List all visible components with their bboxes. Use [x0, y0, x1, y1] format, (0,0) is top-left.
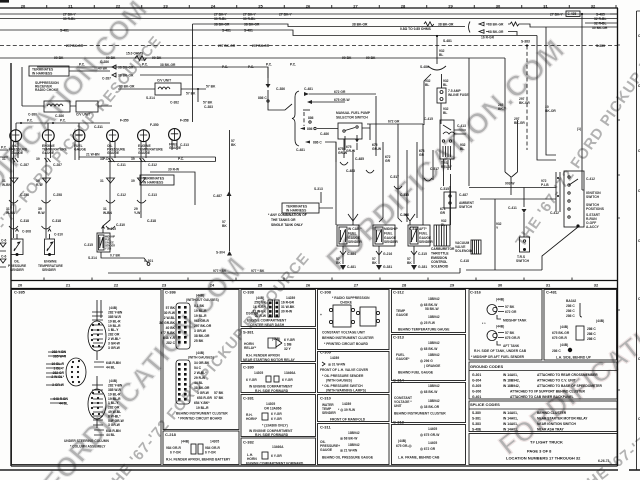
svg-text:26: 26	[306, 283, 311, 288]
svg-text:30 R-W: 30 R-W	[281, 309, 293, 313]
svg-text:BK-GR: BK-GR	[519, 101, 530, 105]
svg-text:30 R-BL: 30 R-BL	[63, 17, 75, 21]
svg-text:C-287: C-287	[20, 163, 29, 167]
svg-text:39: 39	[36, 157, 40, 161]
svg-text:+: +	[320, 313, 322, 317]
svg-text:23: 23	[163, 3, 168, 8]
svg-text:C-311: C-311	[117, 163, 126, 167]
svg-text:58 BK-W: 58 BK-W	[425, 307, 439, 311]
svg-text:38 BK-OR: 38 BK-OR	[118, 74, 134, 78]
svg-text:C-486: C-486	[320, 132, 329, 136]
svg-text:GAUGE: GAUGE	[320, 448, 333, 452]
svg-text:0.7 BK: 0.7 BK	[110, 254, 121, 258]
svg-text:(44B): (44B)	[109, 379, 117, 383]
svg-text:IN ENGINE COMPARTMENT: IN ENGINE COMPARTMENT	[249, 429, 293, 433]
svg-text:297 BK-GR: 297 BK-GR	[218, 44, 236, 48]
svg-text:28: 28	[402, 283, 407, 288]
svg-text:R.H. SIDE OF TANK, UNDER CAB: R.H. SIDE OF TANK, UNDER CAB	[474, 349, 527, 353]
svg-text:648 R-BN: 648 R-BN	[106, 429, 121, 433]
svg-text:THE TANKS OR: THE TANKS OR	[271, 218, 296, 222]
svg-text:C-484: C-484	[347, 252, 356, 256]
svg-text:648 Y-R: 648 Y-R	[163, 336, 175, 340]
svg-text:HORN*: HORN*	[246, 417, 258, 421]
svg-text:38 BK-OR: 38 BK-OR	[438, 22, 454, 26]
svg-text:◎ 68 BK-W: ◎ 68 BK-W	[420, 347, 438, 351]
svg-text:C/V UNIT: C/V UNIT	[157, 79, 171, 83]
svg-text:FUEL: FUEL	[348, 231, 357, 235]
svg-text:18B942: 18B942	[348, 431, 360, 435]
svg-text:IN 14A01,: IN 14A01,	[503, 417, 518, 421]
svg-text:R.H. SIDE FORWARD: R.H. SIDE FORWARD	[255, 389, 289, 393]
svg-text:30: 30	[496, 3, 501, 8]
svg-text:* COLUMN ASSEMBLY: * COLUMN ASSEMBLY	[70, 445, 106, 449]
svg-text:23: 23	[162, 283, 167, 288]
svg-text:SENDER: SENDER	[384, 240, 398, 244]
svg-text:(WITH GAUGES): (WITH GAUGES)	[326, 378, 352, 382]
svg-text:AFT TANK: AFT TANK	[503, 344, 520, 348]
svg-text:FRONT OF MANIFOLD: FRONT OF MANIFOLD	[330, 417, 366, 421]
svg-text:THROTTLE: THROTTLE	[431, 251, 449, 255]
svg-text:C-386: C-386	[276, 87, 285, 91]
svg-text:C-515: C-515	[440, 187, 449, 191]
svg-text:C-312: C-312	[393, 290, 405, 295]
svg-text:UNIT: UNIT	[394, 404, 402, 408]
svg-text:57 BK: 57 BK	[214, 391, 224, 395]
svg-text:38 BK-OR: 38 BK-OR	[194, 334, 210, 338]
svg-text:P.C.: P.C.	[266, 63, 272, 67]
svg-text:38 BK-OR: 38 BK-OR	[119, 85, 135, 89]
svg-text:19 BL-R: 19 BL-R	[108, 397, 121, 401]
svg-text:14289: 14289	[286, 296, 295, 300]
svg-text:C-411: C-411	[508, 206, 517, 210]
svg-text:977 * BK: 977 * BK	[213, 269, 227, 273]
svg-text:ENGINE COMPARTMENT: ENGINE COMPARTMENT	[247, 318, 286, 322]
svg-text:C-380: C-380	[243, 365, 255, 370]
svg-text:GAUGE: GAUGE	[348, 236, 361, 240]
svg-text:C-418: C-418	[460, 259, 469, 263]
svg-text:(WITH WARNING LAMPS): (WITH WARNING LAMPS)	[326, 388, 366, 392]
svg-text:C-385: C-385	[14, 290, 26, 295]
svg-text:EMISSION: EMISSION	[431, 256, 448, 260]
svg-text:57 BK: 57 BK	[214, 396, 224, 400]
svg-text:C-481: C-481	[546, 290, 558, 295]
svg-text:C-481: C-481	[296, 148, 305, 152]
svg-text:◎ 31 W-RN: ◎ 31 W-RN	[328, 362, 346, 366]
svg-text:C-380: C-380	[28, 112, 37, 116]
svg-text:C-487: C-487	[213, 194, 222, 198]
svg-text:GAUGE*: GAUGE*	[396, 357, 410, 361]
svg-text:14305: 14305	[254, 371, 263, 375]
svg-text:40 BK: 40 BK	[166, 326, 176, 330]
svg-text:C-312: C-312	[148, 163, 157, 167]
svg-text:653 R-GR: 653 R-GR	[197, 396, 212, 400]
svg-text:ATTACHED TO BASE OF SPEEDOMETE: ATTACHED TO BASE OF SPEEDOMETER	[537, 384, 602, 388]
svg-text:GR: GR	[419, 153, 425, 157]
svg-text:BK-GR: BK-GR	[514, 121, 525, 125]
svg-text:44 BL: 44 BL	[106, 433, 115, 437]
svg-text:AFT*: AFT*	[419, 227, 427, 231]
svg-text:3 GR-W: 3 GR-W	[108, 346, 121, 350]
svg-text:GAUGE: GAUGE	[107, 151, 120, 155]
svg-text:984 GR-R: 984 GR-R	[205, 446, 220, 450]
svg-text:286 C: 286 C	[566, 309, 575, 313]
svg-text:R-W: R-W	[36, 183, 43, 187]
svg-text:S-314: S-314	[88, 256, 97, 260]
svg-text:GR: GR	[440, 211, 446, 215]
svg-text:P-LB: P-LB	[541, 183, 549, 187]
svg-text:SWITCH: SWITCH	[459, 205, 473, 209]
svg-text:29 R-W: 29 R-W	[194, 376, 206, 380]
svg-text:6 Y-GR: 6 Y-GR	[271, 417, 282, 421]
svg-text:18B942: 18B942	[428, 315, 440, 319]
svg-text:OR 13A866: OR 13A866	[264, 406, 282, 410]
svg-text:2 W-BL*: 2 W-BL*	[194, 371, 207, 375]
svg-text:P.C.: P.C.	[222, 65, 228, 69]
svg-text:13466A: 13466A	[272, 445, 284, 449]
svg-text:UNDER STEERING COLUMN: UNDER STEERING COLUMN	[64, 439, 109, 443]
svg-text:FUEL: FUEL	[419, 231, 428, 235]
svg-text:2 W-BL*: 2 W-BL*	[108, 337, 121, 341]
svg-text:NEAR ASH TRAY: NEAR ASH TRAY	[537, 428, 564, 432]
svg-text:S-485: S-485	[596, 12, 605, 16]
svg-text:BK: BK	[222, 224, 227, 228]
svg-text:C-310: C-310	[320, 396, 332, 401]
svg-text:20: 20	[21, 3, 26, 8]
svg-text:(44B): (44B)	[398, 439, 406, 443]
svg-text:NEAR STARTING MOTOR RELAY: NEAR STARTING MOTOR RELAY	[243, 358, 296, 362]
svg-text:14305: 14305	[210, 439, 219, 443]
svg-text:3 GR-W: 3 GR-W	[197, 391, 210, 395]
svg-text:BK: BK	[336, 261, 341, 265]
svg-text:648 R-BN: 648 R-BN	[106, 361, 121, 365]
svg-text:286 C: 286 C	[552, 349, 561, 353]
svg-text:977 * BK: 977 * BK	[251, 269, 265, 273]
svg-text:IN 18B942,: IN 18B942,	[503, 384, 520, 388]
svg-text:14405: 14405	[428, 441, 437, 445]
svg-text:C-258: C-258	[20, 193, 29, 197]
svg-text:RELAY: RELAY	[441, 165, 453, 169]
svg-text:672 GR: 672 GR	[388, 120, 400, 124]
svg-text:S-485: S-485	[568, 12, 577, 16]
svg-text:57 BK: 57 BK	[166, 306, 176, 310]
svg-text:GR-W: GR-W	[346, 149, 356, 153]
svg-text:ENGINE: ENGINE	[44, 259, 57, 263]
svg-text:IN ENGINE COMPARTMENT: IN ENGINE COMPARTMENT	[249, 384, 293, 388]
svg-text:1 DB: 1 DB	[284, 343, 292, 347]
svg-text:C-415: C-415	[424, 117, 433, 121]
svg-text:P.C.: P.C.	[1, 146, 7, 150]
svg-text:3 GR-W: 3 GR-W	[108, 423, 121, 427]
svg-text:P.C.: P.C.	[142, 63, 148, 67]
svg-text:BK: BK	[407, 261, 412, 265]
svg-text:18B942: 18B942	[428, 341, 440, 345]
svg-text:14405: 14405	[428, 427, 437, 431]
svg-text:Y-258: Y-258	[105, 248, 112, 251]
svg-text:G-381: G-381	[418, 265, 427, 269]
svg-text:54F GR-W: 54F GR-W	[108, 419, 125, 423]
svg-text:90 BK: 90 BK	[152, 56, 162, 60]
svg-text:C-481: C-481	[304, 87, 313, 91]
svg-text:984 GR-R: 984 GR-R	[166, 446, 181, 450]
svg-text:P.C.: P.C.	[290, 63, 296, 67]
svg-text:BL: BL	[460, 147, 464, 151]
svg-text:IN HARNESS: IN HARNESS	[32, 72, 53, 76]
svg-text:C-311: C-311	[94, 125, 103, 129]
svg-text:R.H. FENDER APRON: R.H. FENDER APRON	[246, 353, 280, 357]
svg-text:S-313: S-313	[314, 187, 323, 191]
svg-text:29: 29	[448, 3, 453, 8]
svg-text:30 R-BL: 30 R-BL	[243, 17, 255, 21]
svg-text:RELAY*: RELAY*	[244, 346, 257, 350]
svg-text:RADIO CHOKE: RADIO CHOKE	[35, 88, 59, 92]
svg-text:SOLENOID: SOLENOID	[431, 265, 449, 269]
svg-text:BL: BL	[443, 111, 447, 115]
svg-text:GAUGE: GAUGE	[396, 313, 409, 317]
svg-text:29: 29	[450, 283, 455, 288]
svg-text:6 Y-GR: 6 Y-GR	[284, 338, 295, 342]
svg-text:GROUND CODES: GROUND CODES	[470, 364, 503, 369]
svg-text:32 R-BL: 32 R-BL	[594, 21, 606, 25]
svg-text:C-258: C-258	[53, 193, 62, 197]
svg-text:CENTER NEAR DASH: CENTER NEAR DASH	[250, 323, 285, 327]
svg-text:(44B): (44B)	[196, 293, 204, 297]
svg-text:90 BK: 90 BK	[366, 56, 376, 60]
svg-text:C-516: C-516	[400, 213, 409, 217]
svg-text:C-312: C-312	[117, 193, 126, 197]
svg-text:C-412: C-412	[550, 211, 559, 215]
svg-text:57 BK: 57 BK	[206, 85, 216, 89]
svg-text:19 BL-R: 19 BL-R	[194, 314, 207, 318]
svg-text:* ◎ 39 R-W: * ◎ 39 R-W	[338, 408, 356, 412]
svg-text:(44B): (44B)	[496, 324, 504, 328]
svg-text:30: 30	[498, 283, 503, 288]
svg-text:S-381: S-381	[472, 417, 481, 421]
svg-text:MIDSHIP: MIDSHIP	[384, 227, 399, 231]
svg-text:39: 39	[131, 179, 135, 183]
svg-text:C-315: C-315	[418, 252, 427, 256]
svg-text:BL: BL	[443, 83, 447, 87]
svg-text:IN HARNESS: IN HARNESS	[143, 181, 164, 185]
svg-text:C-218: C-218	[165, 432, 177, 437]
svg-text:BEHIND TEMPERATURE GAUGE: BEHIND TEMPERATURE GAUGE	[398, 327, 450, 331]
svg-text:BK-OR: BK-OR	[545, 109, 556, 113]
svg-text:GR-W: GR-W	[338, 151, 348, 155]
svg-text:C-318: C-318	[147, 219, 156, 223]
svg-text:26: 26	[306, 3, 311, 8]
svg-text:C-315: C-315	[84, 243, 93, 247]
svg-text:15.0 OHMS: 15.0 OHMS	[126, 51, 144, 55]
svg-text:GAUGE: GAUGE	[138, 151, 151, 155]
svg-text:6 Y-GR: 6 Y-GR	[271, 454, 282, 458]
svg-text:31: 31	[100, 179, 104, 183]
svg-text:T# LIGHT TRUCK: T# LIGHT TRUCK	[530, 440, 563, 445]
svg-text:G-301: G-301	[472, 373, 481, 377]
svg-text:MIDSHIP TANK: MIDSHIP TANK	[503, 318, 527, 322]
svg-text:385 W-R: 385 W-R	[108, 388, 122, 392]
svg-text:◎ 68 BK-W: ◎ 68 BK-W	[340, 436, 358, 440]
svg-text:886 C: 886 C	[313, 141, 322, 145]
svg-text:P.C.: P.C.	[103, 157, 109, 161]
svg-text:S-304: S-304	[216, 250, 225, 254]
svg-text:P.C.: P.C.	[60, 119, 66, 123]
svg-text:| ORANGE: | ORANGE	[424, 364, 441, 368]
svg-text:BEHIND FUEL GAUGE: BEHIND FUEL GAUGE	[398, 370, 434, 374]
svg-text:C-313: C-313	[393, 335, 405, 340]
svg-text:A-ACCY: A-ACCY	[586, 225, 600, 229]
svg-text:S-481: S-481	[60, 28, 69, 32]
svg-text:286 C: 286 C	[587, 327, 596, 331]
svg-text:BEHIND OIL PRESSURE GAUGE: BEHIND OIL PRESSURE GAUGE	[322, 455, 374, 459]
svg-text:C-313: C-313	[148, 193, 157, 197]
svg-text:8 W-BL*: 8 W-BL*	[108, 414, 121, 418]
svg-text:1 BL-Y: 1 BL-Y	[108, 401, 119, 405]
svg-text:(WITH GAUGES): (WITH GAUGES)	[188, 356, 214, 360]
svg-text:297 BK-GR: 297 BK-GR	[66, 44, 84, 48]
svg-text:◎ 38 BK-OR: ◎ 38 BK-OR	[420, 405, 440, 409]
svg-text:* OIL PRESSURE SWITCH: * OIL PRESSURE SWITCH	[322, 384, 363, 388]
svg-text:SPLICE CODES: SPLICE CODES	[470, 402, 500, 407]
svg-text:SELECTOR SWITCH: SELECTOR SWITCH	[336, 115, 368, 119]
svg-text:25: 25	[258, 3, 263, 8]
svg-text:S-383: S-383	[596, 44, 605, 48]
svg-text:G-301: G-301	[144, 259, 153, 263]
svg-text:22: 22	[116, 3, 121, 8]
svg-text:ENGINE COMPARTMENT FORWARD: ENGINE COMPARTMENT FORWARD	[246, 461, 304, 465]
svg-text:IN 14A01,: IN 14A01,	[503, 428, 518, 432]
svg-text:54 C: 54 C	[194, 366, 202, 370]
svg-text:C-318: C-318	[52, 219, 61, 223]
svg-text:GR: GR	[385, 159, 391, 163]
svg-text:38 BK-OR: 38 BK-OR	[244, 22, 260, 26]
svg-text:INLINE FUSE: INLINE FUSE	[448, 93, 469, 97]
svg-text:Y-W: Y-W	[134, 211, 141, 215]
svg-text:C-412: C-412	[586, 177, 595, 181]
svg-text:0.8Ω TO 0.85 OHMS: 0.8Ω TO 0.85 OHMS	[400, 27, 432, 31]
svg-text:18B942: 18B942	[428, 297, 440, 301]
svg-text:S-481: S-481	[443, 39, 452, 43]
svg-text:654 Y-BK*: 654 Y-BK*	[194, 401, 210, 405]
svg-text:38 BK-OR: 38 BK-OR	[352, 22, 368, 26]
svg-text:G-304: G-304	[472, 379, 481, 383]
svg-text:ATTACHED TO CAB INNER BACKPANE: ATTACHED TO CAB INNER BACKPANEL	[510, 395, 574, 399]
svg-text:IN CAB *: IN CAB *	[348, 227, 362, 231]
svg-text:21: 21	[66, 283, 71, 288]
svg-text:57 BK: 57 BK	[203, 101, 213, 105]
svg-text:S-486: S-486	[420, 65, 429, 69]
svg-text:30 BK-OR: 30 BK-OR	[592, 26, 608, 30]
svg-text:BL: BL	[439, 53, 443, 57]
svg-text:SOLENOID: SOLENOID	[455, 249, 473, 253]
svg-text:OIL: OIL	[14, 259, 20, 263]
svg-text:BEHIND INSTRUMENT CLUSTER: BEHIND INSTRUMENT CLUSTER	[176, 412, 228, 416]
svg-text:27 BK-Y: 27 BK-Y	[63, 12, 76, 16]
svg-text:POSITIONS: POSITIONS	[586, 207, 605, 211]
svg-text:1 BL-Y: 1 BL-Y	[108, 328, 119, 332]
svg-text:C-6: C-6	[1, 239, 6, 243]
svg-text:31: 31	[543, 3, 548, 8]
svg-text:27 BK-Y: 27 BK-Y	[243, 12, 256, 16]
svg-text:24: 24	[211, 3, 216, 8]
svg-text:32 Y: 32 Y	[284, 347, 292, 351]
svg-text:C-308: C-308	[22, 230, 31, 234]
svg-text:S-380: S-380	[472, 411, 481, 415]
svg-text:◎ 672 GR: ◎ 672 GR	[420, 447, 436, 451]
svg-text:SINGLE TANK ONLY: SINGLE TANK ONLY	[271, 223, 304, 227]
svg-text:ATTACHED TO REAR CROSSMEMBER: ATTACHED TO REAR CROSSMEMBER	[537, 373, 598, 377]
svg-text:IN 14A01,: IN 14A01,	[503, 373, 518, 377]
svg-text:W-BN: W-BN	[103, 211, 113, 215]
svg-text:C-310: C-310	[54, 233, 63, 237]
svg-text:21: 21	[68, 3, 73, 8]
svg-text:13466A: 13466A	[284, 371, 296, 375]
svg-text:90 BK: 90 BK	[342, 56, 352, 60]
svg-text:886: 886	[308, 116, 314, 120]
svg-text:* OIL PRESSURE SENDER: * OIL PRESSURE SENDER	[322, 374, 364, 378]
svg-text:FRONT OF L.H. VALVE COVER: FRONT OF L.H. VALVE COVER	[320, 368, 369, 372]
svg-text:G-305: G-305	[472, 384, 481, 388]
svg-text:BEHIND INSTRUMENT CLUSTER: BEHIND INSTRUMENT CLUSTER	[322, 336, 374, 340]
svg-text:C-515: C-515	[400, 193, 409, 197]
svg-text:25C BK: 25C BK	[254, 301, 266, 305]
svg-text:18B942: 18B942	[428, 353, 440, 357]
svg-text:675 GR-◎: 675 GR-◎	[396, 444, 411, 448]
svg-text:S-481: S-481	[222, 28, 231, 32]
svg-text:31: 31	[2, 157, 6, 161]
svg-text:0.1 BK: 0.1 BK	[194, 304, 205, 308]
svg-text:675 GR-W: 675 GR-W	[334, 98, 350, 102]
svg-text:38 BK-OR: 38 BK-OR	[214, 22, 230, 26]
svg-text:S-481: S-481	[244, 28, 253, 32]
svg-text:SWITCH: SWITCH	[516, 259, 530, 263]
svg-text:C-381: C-381	[243, 396, 255, 401]
svg-text:C-517: C-517	[390, 175, 399, 179]
svg-text:L.H. SIDE, BEHIND UP: L.H. SIDE, BEHIND UP	[556, 355, 592, 359]
svg-text:C-309: C-309	[320, 350, 332, 355]
svg-text:GAUGE: GAUGE	[419, 236, 432, 240]
svg-text:GR-W: GR-W	[372, 147, 382, 151]
svg-text:(44B): (44B)	[596, 319, 604, 323]
svg-text:IN 18B942,: IN 18B942,	[503, 379, 520, 383]
svg-text:C-311: C-311	[320, 425, 331, 430]
svg-text:286 C: 286 C	[566, 304, 575, 308]
svg-text:BK: BK	[231, 143, 236, 147]
svg-text:BK: BK	[372, 261, 377, 265]
svg-text:CHOKE: CHOKE	[340, 300, 353, 304]
svg-text:32: 32	[591, 3, 596, 8]
svg-text:32 R-BL: 32 R-BL	[594, 17, 606, 21]
svg-text:MANUAL FUEL PUMP: MANUAL FUEL PUMP	[336, 111, 371, 115]
svg-text:C-313: C-313	[180, 143, 189, 147]
svg-text:49 W-BL: 49 W-BL	[108, 410, 121, 414]
svg-text:BL: BL	[425, 83, 429, 87]
svg-text:3 GR-W: 3 GR-W	[194, 329, 207, 333]
svg-text:22: 22	[114, 283, 119, 288]
svg-text:C-485: C-485	[355, 157, 364, 161]
svg-text:19 BL-R: 19 BL-R	[108, 392, 121, 396]
svg-text:C-308: C-308	[320, 290, 332, 295]
svg-text:286 C: 286 C	[587, 332, 596, 336]
svg-text:C-315: C-315	[107, 227, 116, 231]
svg-text:6 Y-GR: 6 Y-GR	[246, 378, 257, 382]
svg-text:27: 27	[354, 283, 359, 288]
svg-text:57 BK: 57 BK	[505, 331, 515, 335]
svg-text:39: 39	[131, 157, 135, 161]
svg-text:* ANY COMBINATION OF: * ANY COMBINATION OF	[268, 213, 307, 217]
svg-text:C-386: C-386	[55, 114, 64, 118]
svg-text:LOCATION NUMBERS 17 THROUGH: LOCATION NUMBERS 17 THROUGH 32	[506, 456, 581, 461]
svg-text:19 BL-R: 19 BL-R	[108, 319, 121, 323]
svg-text:297 BK-GR: 297 BK-GR	[252, 44, 270, 48]
